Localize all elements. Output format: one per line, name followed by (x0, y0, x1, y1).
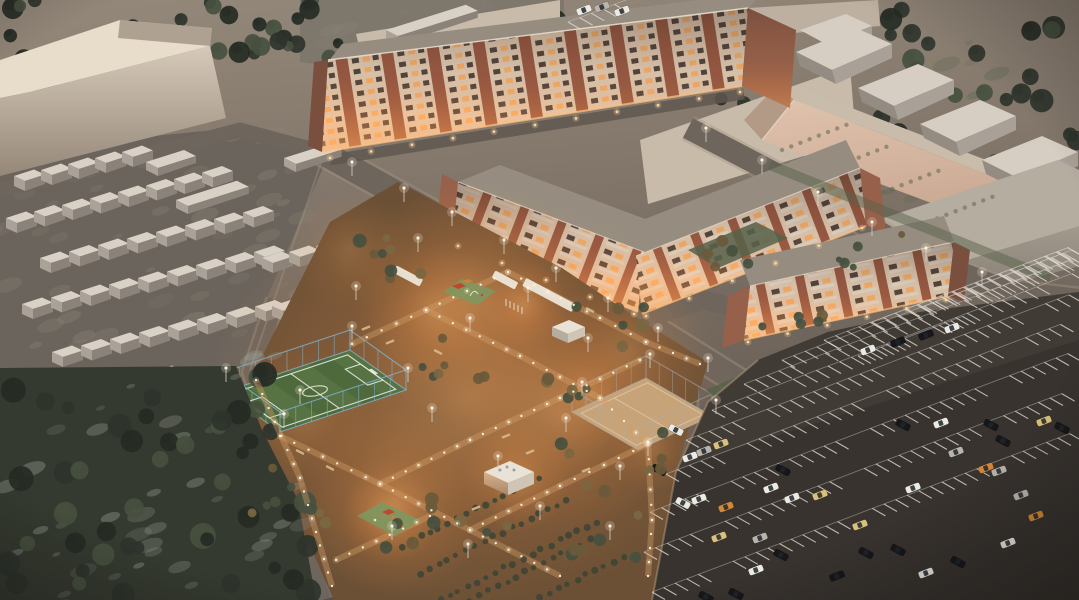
architectural-render (0, 0, 1079, 600)
site-plan-svg (0, 0, 1079, 600)
vignette-overlay (0, 0, 1079, 600)
